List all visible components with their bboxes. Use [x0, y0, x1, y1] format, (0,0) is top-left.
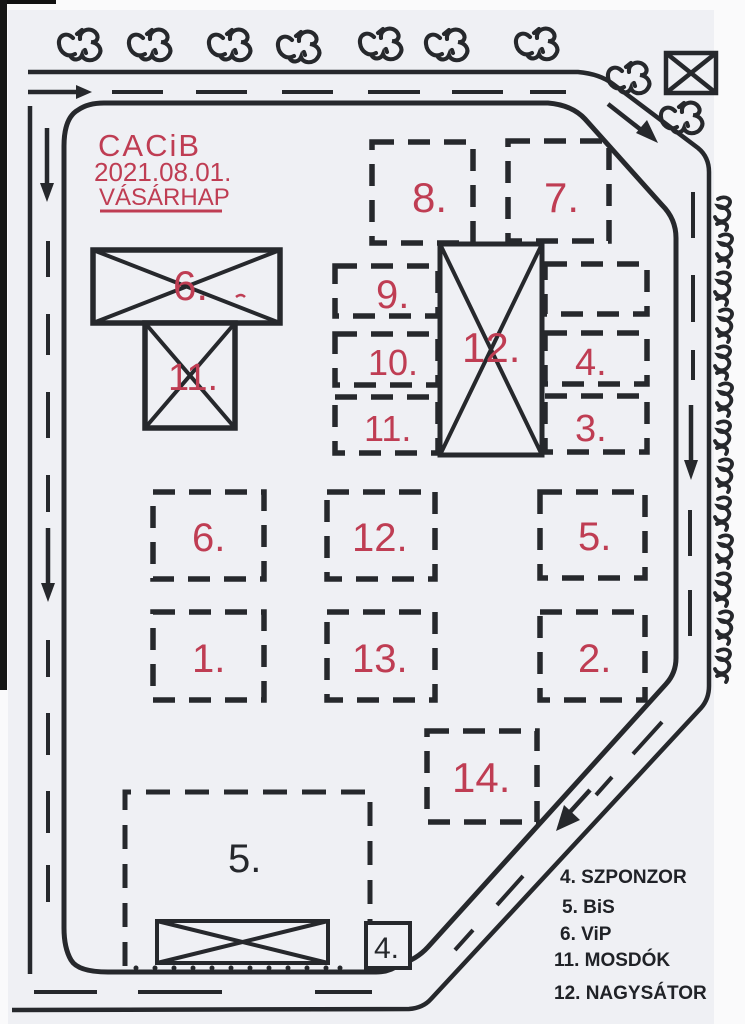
svg-text:11.: 11.	[364, 408, 411, 449]
svg-text:8.: 8.	[412, 174, 447, 221]
svg-text:6. ViP: 6. ViP	[560, 924, 612, 945]
svg-text:1.: 1.	[192, 637, 225, 681]
svg-text:2021.08.01.: 2021.08.01.	[94, 157, 231, 187]
svg-text:4. SZPONZOR: 4. SZPONZOR	[560, 867, 687, 888]
svg-text:12.: 12.	[352, 516, 408, 560]
svg-text:9.: 9.	[376, 273, 409, 317]
svg-text:VÁSÁRHAP: VÁSÁRHAP	[99, 184, 230, 211]
svg-text:5. BiS: 5. BiS	[562, 897, 615, 918]
svg-text:6.: 6.	[192, 516, 225, 560]
svg-text:11.: 11.	[168, 357, 218, 399]
svg-text:5.: 5.	[228, 837, 261, 881]
svg-text:7.: 7.	[544, 174, 579, 221]
svg-text:10.: 10.	[368, 342, 418, 383]
svg-text:13.: 13.	[352, 637, 408, 681]
svg-text:6.: 6.	[173, 262, 208, 309]
svg-text:5.: 5.	[578, 515, 611, 559]
svg-text:14.: 14.	[452, 754, 510, 801]
svg-text:12.: 12.	[462, 324, 520, 371]
svg-text:3.: 3.	[575, 408, 607, 450]
svg-text:4.: 4.	[374, 932, 399, 965]
svg-text:11. MOSDÓK: 11. MOSDÓK	[554, 949, 670, 971]
svg-text:4.: 4.	[575, 342, 607, 384]
svg-text:2.: 2.	[578, 637, 611, 681]
svg-text:12. NAGYSÁTOR: 12. NAGYSÁTOR	[554, 982, 707, 1004]
